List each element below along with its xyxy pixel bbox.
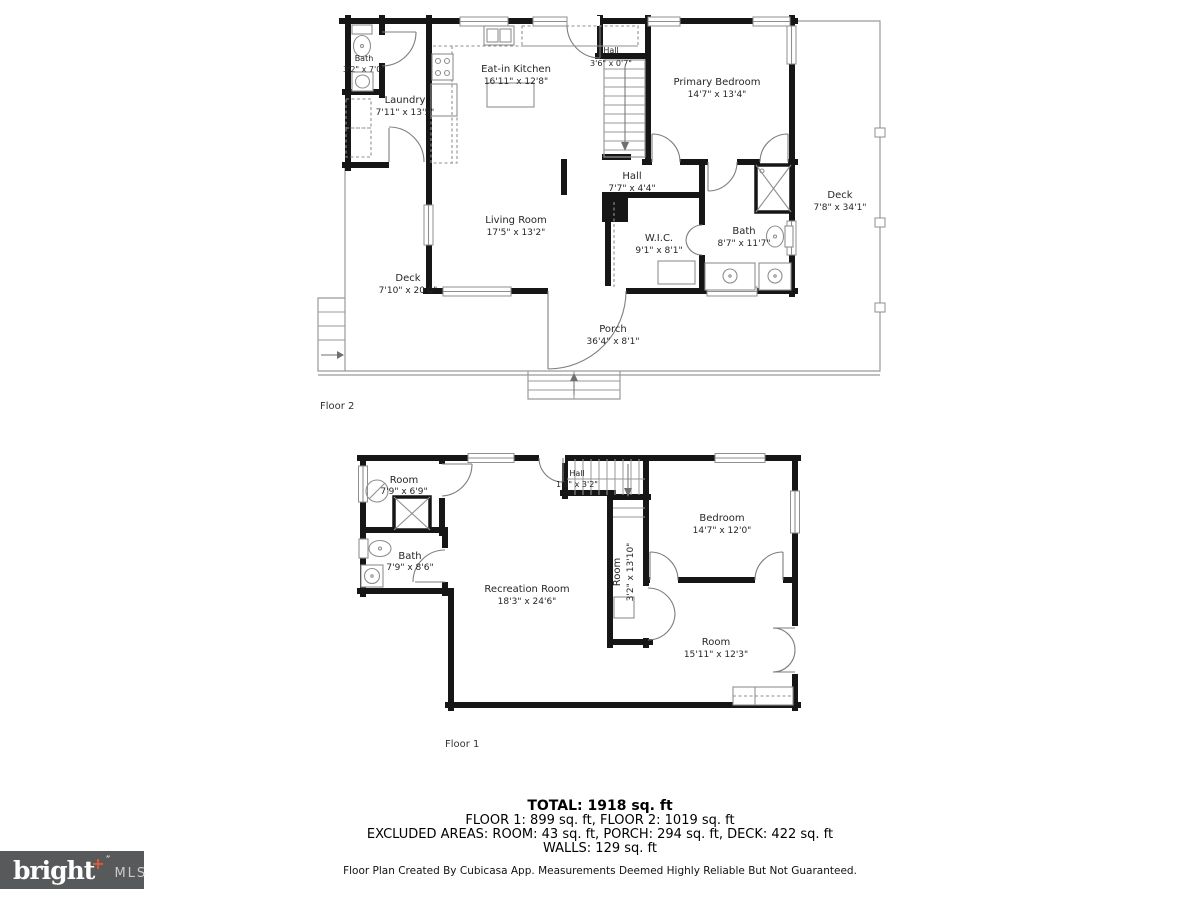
room-label: Bath <box>398 551 421 562</box>
room-label: Bath <box>355 54 374 63</box>
room-dims: 14'7" x 12'0" <box>693 526 752 536</box>
disclaimer: Floor Plan Created By Cubicasa App. Meas… <box>0 865 1200 877</box>
room-dims: 36'4" x 8'1" <box>587 337 640 347</box>
room-label: Hall <box>603 46 618 55</box>
plan-geometry <box>389 160 424 170</box>
total-area: TOTAL: 1918 sq. ft <box>0 799 1200 814</box>
plan-geometry <box>708 157 737 167</box>
room-dims: 15'11" x 12'3" <box>684 650 748 660</box>
floor2-plan: Bath 3'2" x 7'0" Laundry 7'11" x 13'5" E… <box>318 16 885 412</box>
room-label: Room <box>612 558 623 586</box>
plan-geometry <box>389 127 424 162</box>
room-label: Laundry <box>385 95 426 106</box>
plan-geometry <box>440 548 450 582</box>
plan-geometry <box>613 508 645 517</box>
floor2-walls <box>342 18 795 294</box>
room-label: W.I.C. <box>645 233 673 244</box>
room-dims: 7'8" x 34'1" <box>814 203 867 213</box>
plan-geometry <box>337 351 344 359</box>
logo-tm-mark: ” <box>106 855 111 865</box>
plan-geometry <box>318 21 880 371</box>
area-summary: TOTAL: 1918 sq. ft FLOOR 1: 899 sq. ft, … <box>0 799 1200 877</box>
room-dims: 14'7" x 13'4" <box>688 90 747 100</box>
plan-geometry <box>648 588 675 640</box>
room-dims: 7'9" x 6'9" <box>380 487 427 497</box>
room-dims: 8'7" x 11'7" <box>718 239 771 249</box>
plan-geometry <box>570 373 578 381</box>
room-label: Living Room <box>485 215 546 226</box>
room-label: Eat-in Kitchen <box>481 64 551 75</box>
room-dims: 18'3" x 24'6" <box>498 597 557 607</box>
room-label: Bath <box>732 226 755 237</box>
room-label: Primary Bedroom <box>673 77 760 88</box>
floor2-stairs <box>604 60 645 157</box>
floor2-caption: Floor 2 <box>320 401 354 412</box>
plan-geometry <box>697 225 707 255</box>
plan-geometry <box>755 575 783 585</box>
logo-plus-icon: + <box>91 854 104 873</box>
plan-geometry <box>650 575 678 585</box>
room-dims: 7'11" x 13'5" <box>376 108 435 118</box>
room-dims: 17'5" x 13'2" <box>487 228 546 238</box>
room-label: Deck <box>827 190 852 201</box>
room-label: Deck <box>395 273 420 284</box>
walls-area: WALLS: 129 sq. ft <box>0 842 1200 856</box>
room-dims: 3'2" x 7'0" <box>343 65 385 74</box>
toilet-icon <box>359 539 368 558</box>
floor1-caption: Floor 1 <box>445 739 479 750</box>
plan-geometry <box>875 128 885 137</box>
plan-geometry <box>431 116 457 163</box>
room-label: Recreation Room <box>484 584 569 595</box>
room-dims: 3'2" x 13'10" <box>626 543 636 602</box>
floor1-plan: Room 7'9" x 6'9" Bath 7'9" x 8'6" Hall 1… <box>359 452 801 750</box>
room-dims: 7'10" x 20'0" <box>379 286 438 296</box>
floor-plan-page: Bath 3'2" x 7'0" Laundry 7'11" x 13'5" E… <box>0 0 1200 900</box>
plan-geometry <box>658 261 695 284</box>
floor-areas: FLOOR 1: 899 sq. ft, FLOOR 2: 1019 sq. f… <box>0 814 1200 828</box>
plan-geometry <box>875 303 885 312</box>
room-label: Hall <box>569 469 584 478</box>
plan-geometry <box>522 26 638 46</box>
room-label: Room <box>390 475 418 486</box>
vanity-icon <box>759 263 791 290</box>
bright-mls-logo: bright+”MLS <box>0 851 144 889</box>
vanity-icon <box>705 263 755 290</box>
room-label: Hall <box>622 171 641 182</box>
plan-geometry <box>369 541 391 557</box>
room-label: Bedroom <box>699 513 744 524</box>
plan-geometry <box>641 586 651 638</box>
logo-suffix-text: MLS <box>114 866 147 881</box>
plan-geometry <box>318 312 345 340</box>
floor-plan-canvas: Bath 3'2" x 7'0" Laundry 7'11" x 13'5" E… <box>0 0 1200 795</box>
plan-geometry <box>437 464 447 498</box>
plan-geometry <box>875 218 885 227</box>
wic-corner-block <box>602 195 628 222</box>
room-dims: 9'1" x 8'1" <box>635 246 682 256</box>
room-dims: 3'6" x 0'7" <box>590 59 632 68</box>
plan-geometry <box>548 286 626 296</box>
room-dims: 1'8" x 3'2" <box>556 480 598 489</box>
room-label: Room <box>702 637 730 648</box>
plan-geometry <box>431 84 457 116</box>
room-label: Porch <box>599 324 627 335</box>
logo-brand-text: bright <box>13 858 94 883</box>
plan-geometry <box>652 157 680 167</box>
plan-geometry <box>567 16 600 26</box>
toilet-icon <box>785 226 793 247</box>
room-dims: 7'9" x 8'6" <box>386 563 433 573</box>
room-dims: 16'11" x 12'8" <box>484 77 548 87</box>
plan-geometry <box>539 452 565 463</box>
plan-geometry <box>382 32 416 66</box>
room-dims: 7'7" x 4'4" <box>608 184 655 194</box>
stove-icon <box>432 54 453 80</box>
toilet-icon <box>352 25 372 34</box>
excluded-areas: EXCLUDED AREAS: ROOM: 43 sq. ft, PORCH: … <box>0 828 1200 842</box>
